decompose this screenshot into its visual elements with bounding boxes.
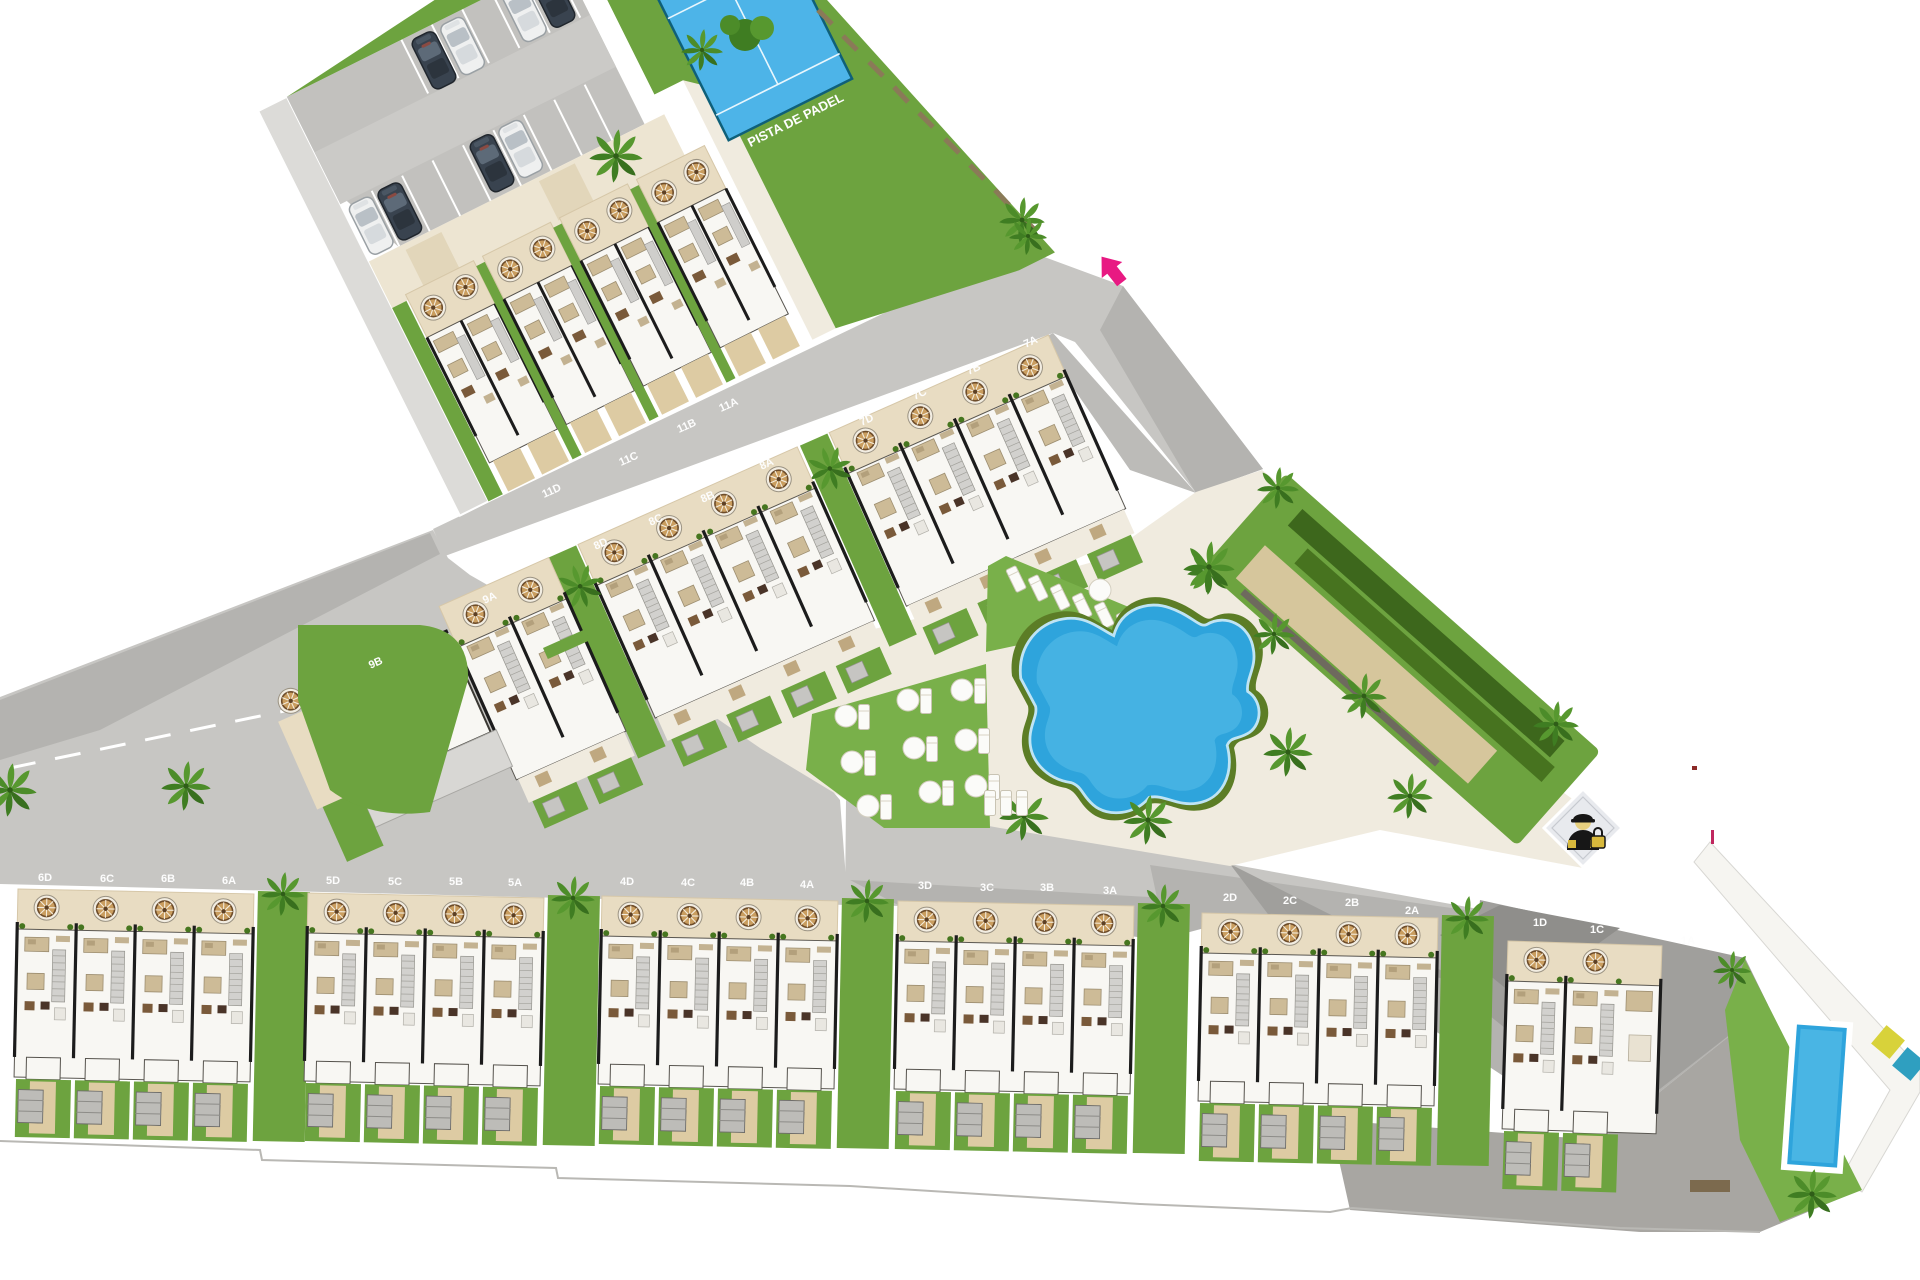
svg-text:6A: 6A: [222, 875, 236, 887]
svg-text:5C: 5C: [388, 876, 402, 888]
svg-text:2D: 2D: [1223, 892, 1237, 904]
svg-text:5B: 5B: [449, 876, 463, 888]
svg-text:1D: 1D: [1533, 917, 1547, 929]
svg-text:1C: 1C: [1590, 924, 1604, 936]
svg-text:4D: 4D: [620, 876, 634, 888]
svg-text:6C: 6C: [100, 873, 114, 885]
svg-text:6B: 6B: [161, 873, 175, 885]
svg-text:3B: 3B: [1040, 882, 1054, 894]
svg-text:6D: 6D: [38, 872, 52, 884]
svg-text:5D: 5D: [326, 875, 340, 887]
svg-text:1A: 1A: [1681, 935, 1695, 947]
svg-text:3D: 3D: [918, 880, 932, 892]
svg-text:4B: 4B: [740, 877, 754, 889]
svg-text:2B: 2B: [1345, 897, 1359, 909]
svg-text:3C: 3C: [980, 882, 994, 894]
svg-text:2A: 2A: [1405, 905, 1419, 917]
svg-text:5A: 5A: [508, 877, 522, 889]
svg-text:4A: 4A: [800, 879, 814, 891]
svg-text:2C: 2C: [1283, 895, 1297, 907]
svg-text:3A: 3A: [1103, 885, 1117, 897]
svg-text:4C: 4C: [681, 877, 695, 889]
